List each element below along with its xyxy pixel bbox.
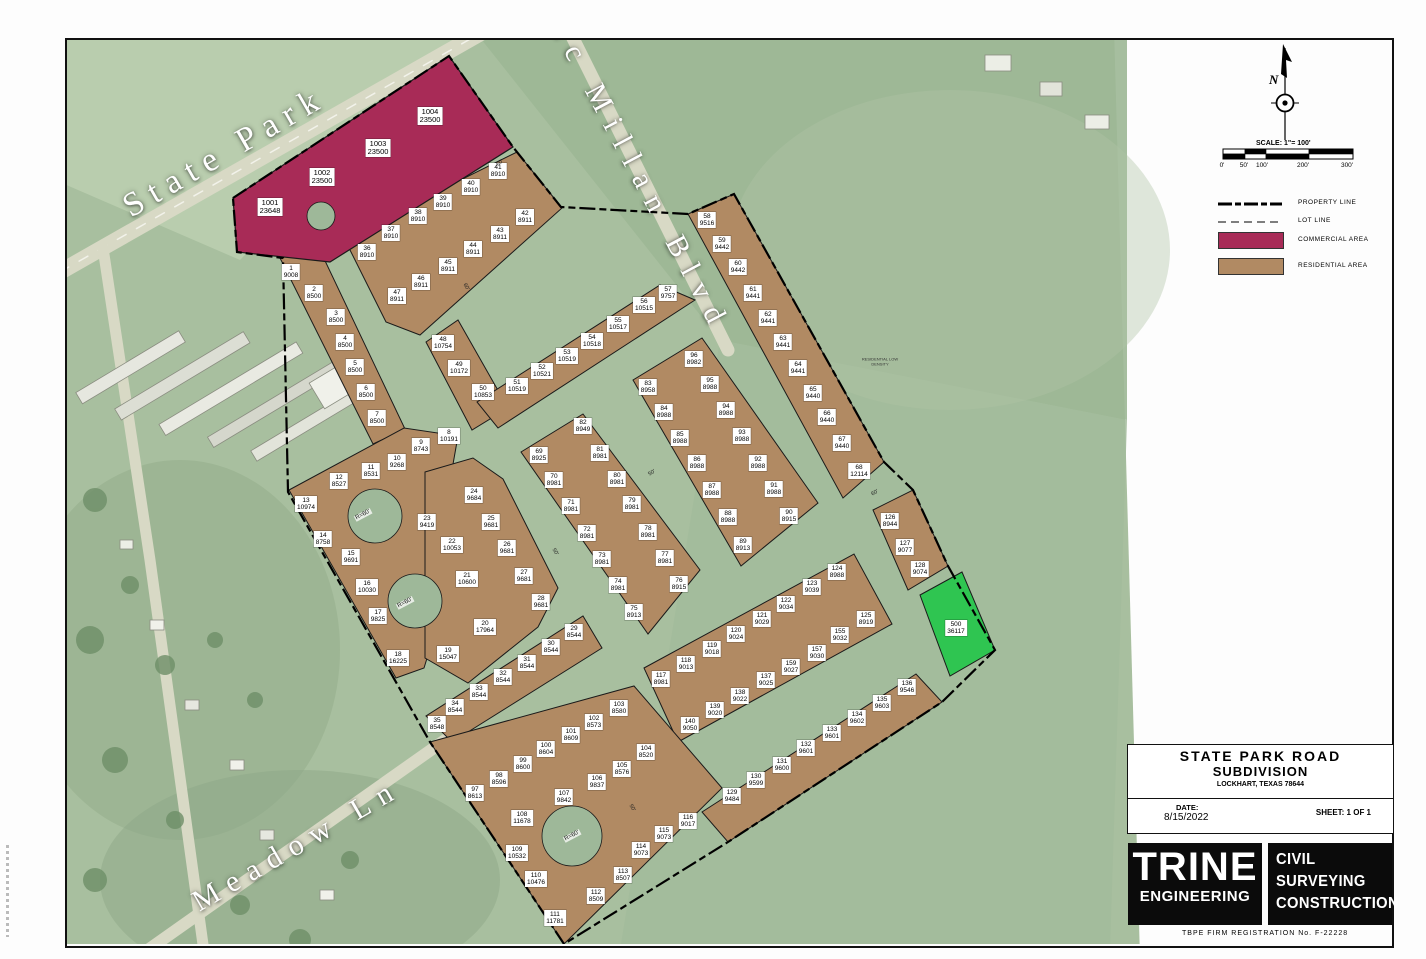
lot-number: 109	[508, 846, 526, 853]
lot-label: 118531	[362, 463, 380, 479]
lot-label: 408910	[462, 179, 480, 195]
lot-area: 8910	[491, 171, 505, 178]
lot-area: 8531	[364, 471, 378, 478]
lot-number: 87	[705, 483, 719, 490]
lot-area: 9073	[657, 834, 671, 841]
lot-label: 298544	[565, 624, 583, 640]
scale-tick: 300'	[1341, 162, 1353, 169]
lot-label: 848988	[655, 404, 673, 420]
lot-area: 9419	[420, 522, 434, 529]
lot-label: 978613	[466, 785, 484, 801]
lot-area: 9440	[806, 393, 820, 400]
lot-number: 110	[527, 872, 545, 879]
lot-label: 708981	[545, 472, 563, 488]
lot-label: 388910	[409, 208, 427, 224]
lot-number: 133	[825, 726, 839, 733]
lot-number: 72	[580, 526, 594, 533]
lot-number: 30	[544, 640, 558, 647]
lot-area: 8981	[593, 453, 607, 460]
lot-label: 10910532	[506, 845, 528, 861]
lot-area: 8500	[370, 418, 384, 425]
lot-area: 17964	[476, 627, 494, 634]
lot-label: 11010476	[525, 871, 547, 887]
scale-tick: 50'	[1240, 162, 1248, 169]
lot-label: 5210521	[531, 363, 553, 379]
legend-item-commercial: COMMERCIAL AREA	[1210, 232, 1380, 258]
legend-item-lot-line: LOT LINE	[1210, 214, 1380, 232]
lot-label: 828949	[574, 418, 592, 434]
lot-area: 9073	[634, 850, 648, 857]
legend-item-property-line: PROPERTY LINE	[1210, 196, 1380, 214]
lot-label: 639441	[774, 334, 792, 350]
lot-area: 8981	[641, 532, 655, 539]
lot-number: 60	[731, 260, 745, 267]
lot-label: 1028573	[585, 714, 603, 730]
lot-area: 8544	[448, 707, 462, 714]
lot-label: 1038580	[610, 700, 628, 716]
lot-label: 348544	[446, 699, 464, 715]
lot-label: 649441	[789, 360, 807, 376]
lot-area: 9681	[517, 576, 531, 583]
lot-area: 9074	[913, 569, 927, 576]
lot-label: 1258919	[857, 611, 875, 627]
lot-number: 100	[539, 742, 553, 749]
lot-label: 458911	[439, 258, 457, 274]
lot-number: 56	[635, 298, 653, 305]
lot-area: 8500	[338, 342, 352, 349]
lot-number: 124	[830, 565, 844, 572]
lot-area: 8911	[390, 296, 404, 303]
lot-number: 86	[690, 456, 704, 463]
lot-area: 9599	[749, 780, 763, 787]
lot-label: 679440	[833, 435, 851, 451]
lot-label: 5110519	[506, 378, 528, 394]
lot-number: 22	[443, 538, 461, 545]
lot-number: 98	[492, 772, 506, 779]
lot-label: 5010853	[472, 384, 494, 400]
lot-number: 82	[576, 419, 590, 426]
lot-label: 398910	[434, 194, 452, 210]
lot-number: 75	[627, 605, 641, 612]
lot-area: 8910	[360, 252, 374, 259]
date-value: 8/15/2022	[1164, 812, 1209, 823]
lot-number: 3	[329, 310, 343, 317]
lot-area: 9441	[776, 342, 790, 349]
lot-label: 1248988	[828, 564, 846, 580]
lot-label: 100323500	[366, 139, 391, 157]
legend-label: LOT LINE	[1298, 217, 1331, 224]
lot-number: 85	[673, 431, 687, 438]
lot-number: 35	[430, 717, 444, 724]
lot-area: 8915	[782, 516, 796, 523]
lot-label: 1610030	[356, 579, 378, 595]
lot-number: 67	[835, 436, 849, 443]
lot-number: 23	[420, 515, 434, 522]
lot-label: 968982	[685, 351, 703, 367]
lot-area: 9484	[725, 796, 739, 803]
lot-label: 718981	[562, 498, 580, 514]
lot-number: 2	[307, 286, 321, 293]
lot-label: 1816225	[387, 650, 409, 666]
lot-label: 1048520	[637, 744, 655, 760]
lot-label: 378910	[382, 225, 400, 241]
lot-number: 137	[759, 673, 773, 680]
lot-number: 126	[883, 514, 897, 521]
lot-label: 109268	[388, 454, 406, 470]
lot-area: 9442	[731, 267, 745, 274]
lot-label: 5410518	[581, 333, 603, 349]
lot-label: 818981	[591, 445, 609, 461]
firm-sub: ENGINEERING	[1128, 889, 1262, 905]
lot-label: 179825	[369, 608, 387, 624]
lot-number: 69	[532, 448, 546, 455]
lot-number: 8	[440, 429, 458, 436]
lot-number: 66	[820, 410, 834, 417]
lot-area: 10030	[358, 587, 376, 594]
lot-number: 102	[587, 715, 601, 722]
lot-number: 68	[850, 464, 868, 471]
lot-number: 43	[493, 227, 507, 234]
lot-number: 73	[595, 552, 609, 559]
lot-area: 9050	[683, 725, 697, 732]
lot-number: 104	[639, 745, 653, 752]
lot-area: 8981	[654, 679, 668, 686]
lot-label: 1058576	[613, 761, 631, 777]
lot-number: 70	[547, 473, 561, 480]
lot-label: 1128509	[587, 888, 605, 904]
scale-tick: 200'	[1297, 162, 1309, 169]
lot-label: 1008604	[537, 741, 555, 757]
lot-area: 8743	[414, 446, 428, 453]
lot-area: 8544	[544, 647, 558, 654]
lot-label: 5510517	[607, 316, 629, 332]
lot-area: 9441	[761, 318, 775, 325]
lot-number: 130	[749, 773, 763, 780]
lot-number: 113	[616, 868, 630, 875]
lot-label: 1299484	[723, 788, 741, 804]
lot-number: 79	[625, 497, 639, 504]
lot-number: 51	[508, 379, 526, 386]
north-arrow: N	[1255, 40, 1325, 145]
lot-area: 9077	[898, 547, 912, 554]
lot-label: 918988	[765, 481, 783, 497]
lot-area: 9516	[700, 220, 714, 227]
lot-label: 338544	[470, 684, 488, 700]
lot-number: 53	[558, 349, 576, 356]
lot-label: 1409050	[681, 717, 699, 733]
lot-area: 9017	[681, 821, 695, 828]
lot-number: 34	[448, 700, 462, 707]
lot-label: 758913	[625, 604, 643, 620]
lot-area: 9837	[590, 782, 604, 789]
lot-label: 798981	[623, 496, 641, 512]
lot-area: 10519	[558, 356, 576, 363]
lot-area: 8949	[576, 426, 590, 433]
lot-area: 8981	[625, 504, 639, 511]
lot-area: 9029	[755, 619, 769, 626]
lot-area: 8910	[411, 216, 425, 223]
lot-number: 94	[719, 403, 733, 410]
lot-number: 50	[474, 385, 492, 392]
lot-area: 8988	[673, 438, 687, 445]
lot-label: 50036117	[945, 620, 967, 636]
lot-number: 114	[634, 843, 648, 850]
lot-area: 8544	[472, 692, 486, 699]
lot-number: 24	[467, 488, 481, 495]
lot-area: 10476	[527, 879, 545, 886]
lot-area: 9018	[705, 649, 719, 656]
lot-area: 8981	[580, 533, 594, 540]
lot-label: 868988	[688, 455, 706, 471]
lot-label: 878988	[703, 482, 721, 498]
lot-area: 8988	[751, 463, 765, 470]
lot-label: 1018609	[562, 727, 580, 743]
lot-area: 8981	[595, 559, 609, 566]
lot-label: 4910172	[448, 360, 470, 376]
lot-label: 838958	[639, 379, 657, 395]
lot-area: 9013	[679, 664, 693, 671]
lot-number: 55	[609, 317, 627, 324]
lot-area: 8613	[468, 793, 482, 800]
lot-label: 318544	[518, 655, 536, 671]
lot-label: 908915	[780, 508, 798, 524]
lot-label: 100223500	[310, 168, 335, 186]
lot-label: 1289074	[911, 561, 929, 577]
lot-area: 8609	[564, 735, 578, 742]
lot-label: 958988	[701, 376, 719, 392]
lot-area: 10172	[450, 368, 468, 375]
lot-number: 119	[705, 642, 719, 649]
lot-area: 9440	[835, 443, 849, 450]
lot-area: 9757	[661, 293, 675, 300]
lot-number: 25	[484, 515, 498, 522]
lot-label: 1268944	[881, 513, 899, 529]
lot-number: 132	[799, 741, 813, 748]
lot-label: 988596	[490, 771, 508, 787]
lot-number: 106	[590, 775, 604, 782]
lot-area: 8913	[627, 612, 641, 619]
lot-number: 10	[390, 455, 404, 462]
lot-area: 10754	[434, 343, 452, 350]
services-logo-box: CIVIL SURVEYING CONSTRUCTION	[1268, 843, 1392, 925]
lot-area: 8500	[348, 367, 362, 374]
lot-number: 122	[779, 597, 793, 604]
lot-area: 8958	[641, 387, 655, 394]
lot-area: 10519	[508, 386, 526, 393]
lot-number: 38	[411, 209, 425, 216]
lot-area: 10053	[443, 545, 461, 552]
lot-label: 438911	[491, 226, 509, 242]
lot-label: 100423500	[418, 107, 443, 125]
residential-swatch	[1218, 258, 1284, 275]
lot-label: 810191	[438, 428, 460, 444]
lot-label: 239419	[418, 514, 436, 530]
tbpe-registration: TBPE FIRM REGISTRATION No. F-22228	[1182, 930, 1348, 937]
lot-label: 58500	[346, 359, 364, 375]
lot-label: 1399020	[706, 702, 724, 718]
lot-label: 1349602	[848, 710, 866, 726]
service-civil: CIVIL	[1276, 849, 1383, 871]
lot-number: 19	[439, 647, 457, 654]
lot-area: 8509	[589, 896, 603, 903]
lot-number: 44	[466, 242, 480, 249]
commercial-swatch	[1218, 232, 1284, 249]
lot-label: 159691	[342, 549, 360, 565]
lot-number: 88	[721, 510, 735, 517]
lot-label: 1310974	[295, 496, 317, 512]
lot-label: 599442	[713, 236, 731, 252]
lot-number: 155	[833, 628, 847, 635]
service-construction: CONSTRUCTION	[1276, 893, 1383, 915]
lot-label: 1069837	[588, 774, 606, 790]
lot-area: 8596	[492, 779, 506, 786]
lot-number: 48	[434, 336, 452, 343]
zoning-annotation: RESIDENTIAL LOW DENSITY	[854, 358, 906, 367]
lot-area: 8500	[329, 317, 343, 324]
lot-label: 1369546	[898, 679, 916, 695]
lot-area: 8981	[611, 585, 625, 592]
title-block: STATE PARK ROAD SUBDIVISION LOCKHART, TE…	[1127, 744, 1394, 834]
lot-label: 1319600	[773, 757, 791, 773]
lot-area: 11781	[546, 918, 564, 925]
lot-number: 6	[359, 385, 373, 392]
lot-area: 10600	[458, 579, 476, 586]
lot-number: 128	[913, 562, 927, 569]
lot-number: 127	[898, 540, 912, 547]
lot-label: 1599027	[782, 659, 800, 675]
lot-number: 61	[746, 286, 760, 293]
lot-number: 101	[564, 728, 578, 735]
lot-number: 91	[767, 482, 781, 489]
lot-area: 8573	[587, 722, 601, 729]
lot-label: 768915	[670, 576, 688, 592]
lot-area: 8988	[735, 436, 749, 443]
lot-number: 16	[358, 580, 376, 587]
lot-number: 18	[389, 651, 407, 658]
lot-area: 10191	[440, 436, 458, 443]
lot-label: 1189013	[677, 656, 695, 672]
lot-area: 8981	[610, 479, 624, 486]
lot-number: 90	[782, 509, 796, 516]
lot-number: 59	[715, 237, 729, 244]
lot-label: 1159073	[655, 826, 673, 842]
plat-sheet: State Park Mc Millan Blvd Meadow Ln RESI…	[0, 0, 1426, 959]
lot-label: 1389022	[731, 688, 749, 704]
firm-logo: TRINE ENGINEERING CIVIL SURVEYING CONSTR…	[1128, 843, 1392, 925]
lot-area: 9268	[390, 462, 404, 469]
lot-area: 8527	[332, 481, 346, 488]
lot-label: 1209024	[727, 626, 745, 642]
lot-label: 468911	[412, 274, 430, 290]
lot-number: 89	[736, 538, 750, 545]
lot-area: 8500	[307, 293, 321, 300]
lot-label: 279681	[515, 568, 533, 584]
lot-number: 95	[703, 377, 717, 384]
lot-area: 8988	[703, 384, 717, 391]
lot-label: 1329601	[797, 740, 815, 756]
lot-area: 9020	[708, 710, 722, 717]
lot-area: 8576	[615, 769, 629, 776]
service-surveying: SURVEYING	[1276, 871, 1383, 893]
lot-area: 12114	[850, 471, 868, 478]
subdivision-title: STATE PARK ROAD	[1128, 748, 1393, 764]
lot-area: 8988	[830, 572, 844, 579]
lot-area: 8911	[414, 282, 428, 289]
lot-number: 120	[729, 627, 743, 634]
lot-number: 17	[371, 609, 385, 616]
lot-number: 83	[641, 380, 655, 387]
lot-label: 448911	[464, 241, 482, 257]
lot-area: 8915	[672, 584, 686, 591]
lot-number: 40	[464, 180, 478, 187]
lot-number: 54	[583, 334, 601, 341]
subdivision-subtitle: SUBDIVISION	[1128, 764, 1393, 779]
lot-label: 259681	[482, 514, 500, 530]
lot-label: 478911	[388, 288, 406, 304]
lot-area: 23500	[368, 148, 389, 156]
lot-label: 1199018	[703, 641, 721, 657]
lot-label: 148758	[314, 531, 332, 547]
lot-label: 858988	[671, 430, 689, 446]
lot-label: 10811678	[511, 810, 533, 826]
lot-area: 9024	[729, 634, 743, 641]
lot-number: 65	[806, 386, 820, 393]
lot-label: 1219029	[753, 611, 771, 627]
lot-area: 16225	[389, 658, 407, 665]
lot-label: 98743	[412, 438, 430, 454]
lot-area: 8988	[719, 410, 733, 417]
lot-area: 8911	[493, 234, 507, 241]
lot-number: 121	[755, 612, 769, 619]
lot-area: 8913	[736, 545, 750, 552]
lot-number: 49	[450, 361, 468, 368]
lot-area: 8520	[639, 752, 653, 759]
lot-number: 26	[500, 541, 514, 548]
lot-area: 8507	[616, 875, 630, 882]
lot-number: 15	[344, 550, 358, 557]
legend-label: COMMERCIAL AREA	[1298, 236, 1368, 243]
lot-area: 9825	[371, 616, 385, 623]
lot-label: 1339601	[823, 725, 841, 741]
lot-area: 8548	[430, 724, 444, 731]
lot-label: 128527	[330, 473, 348, 489]
lot-number: 7	[370, 411, 384, 418]
lot-label: 928988	[749, 455, 767, 471]
lot-area: 9842	[557, 797, 571, 804]
plot-stamp-marks	[6, 845, 9, 937]
lot-number: 74	[611, 578, 625, 585]
lot-area: 23648	[260, 207, 281, 215]
lot-area: 8600	[516, 764, 530, 771]
lot-area: 36117	[947, 628, 965, 635]
lot-number: 57	[661, 286, 675, 293]
lot-number: 31	[520, 656, 534, 663]
lot-number: 125	[859, 612, 873, 619]
lot-area: 9681	[500, 548, 514, 555]
lot-label: 11111781	[544, 910, 566, 926]
lot-area: 8988	[705, 490, 719, 497]
lot-number: 103	[612, 701, 626, 708]
lot-label: 948988	[717, 402, 735, 418]
lot-number: 105	[615, 762, 629, 769]
lot-label: 28500	[305, 285, 323, 301]
lot-number: 92	[751, 456, 765, 463]
sheet-number: SHEET: 1 OF 1	[1316, 808, 1371, 817]
scale-tick: 0'	[1220, 162, 1225, 169]
lot-area: 8982	[687, 359, 701, 366]
lot-area: 9027	[784, 667, 798, 674]
lot-area: 9602	[850, 718, 864, 725]
